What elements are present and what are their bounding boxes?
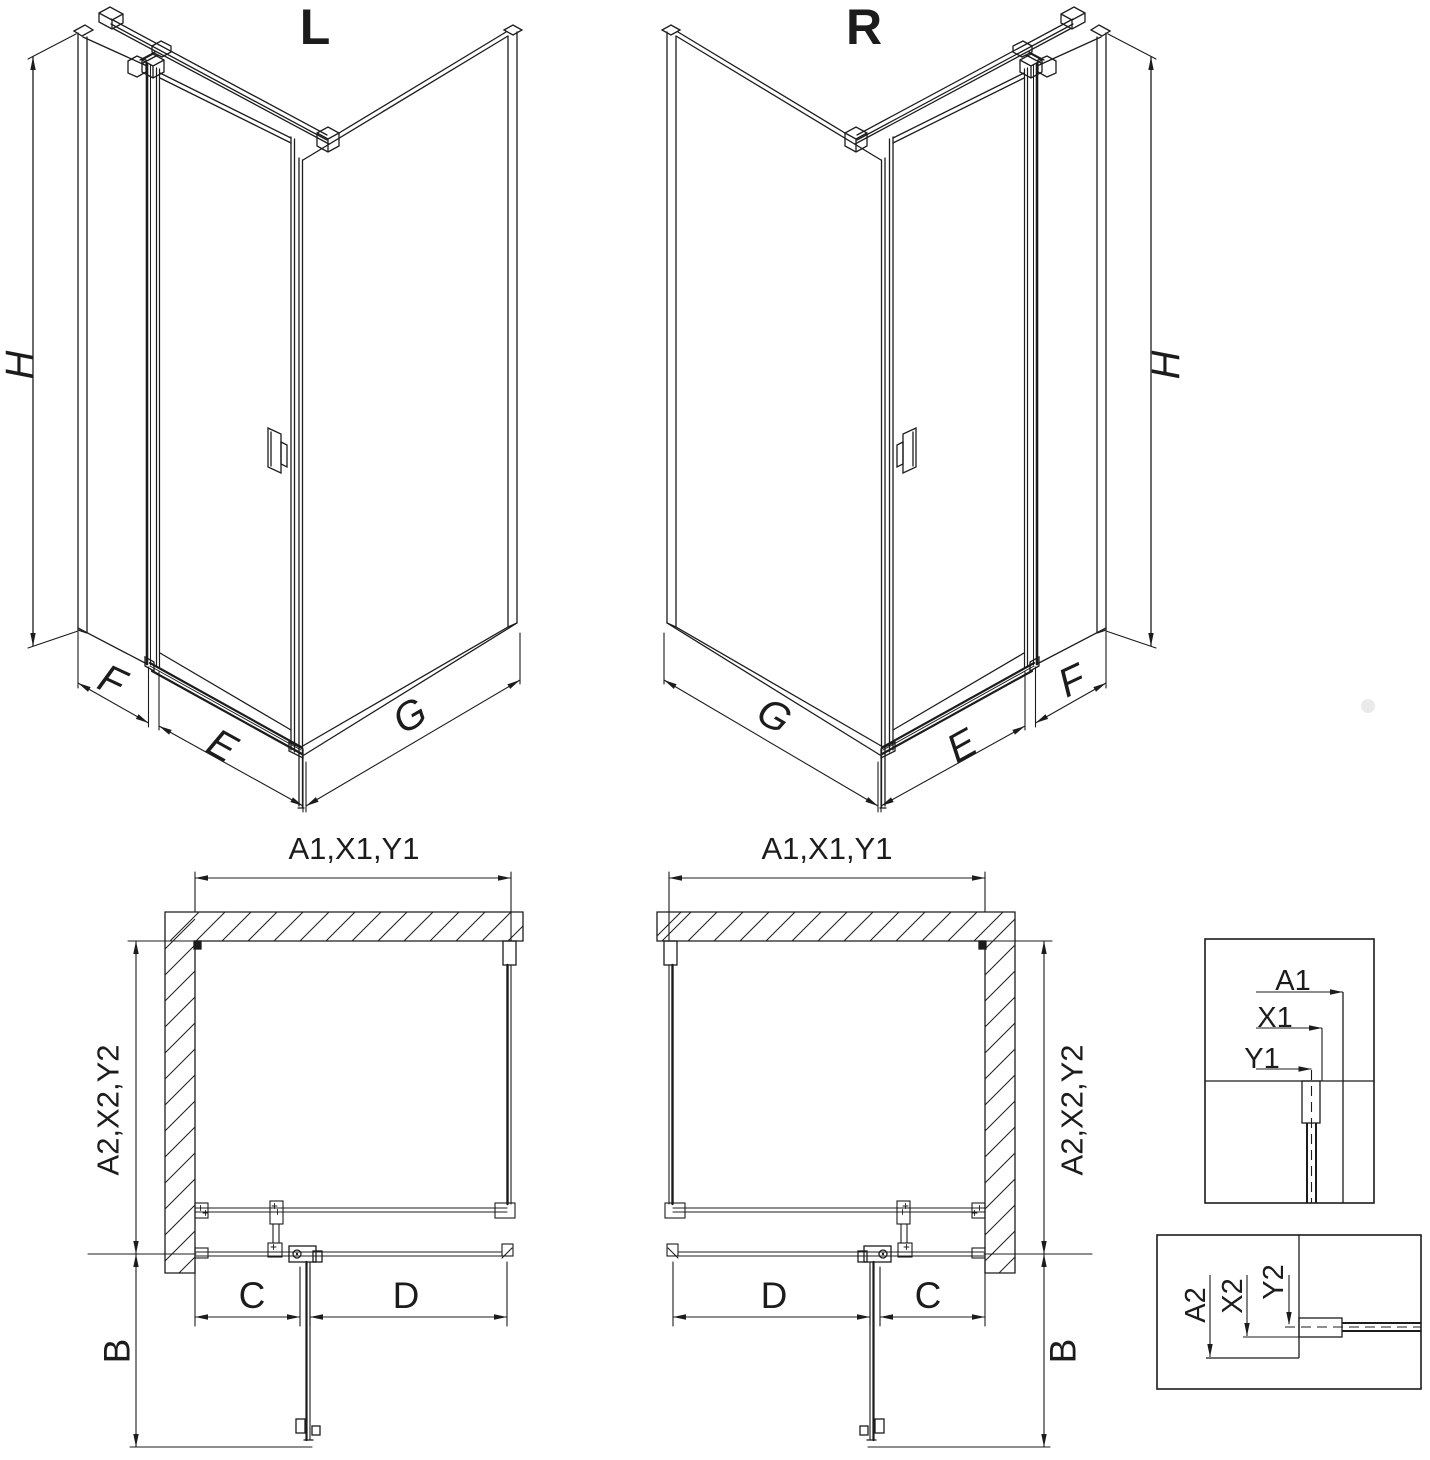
label-a1-plan-right: A1,X1,Y1 — [762, 831, 893, 866]
plan-view-left — [88, 872, 523, 1447]
label-a1-plan-left: A1,X1,Y1 — [289, 831, 420, 866]
label-d-plan-left: D — [393, 1275, 420, 1316]
label-c-plan-right: C — [915, 1275, 942, 1316]
label-d-plan-right: D — [761, 1275, 788, 1316]
technical-drawing-canvas: L H F E G R H F E G A1,X1,Y1 A2,X2,Y2 B … — [0, 0, 1430, 1460]
label-f-right: F — [1052, 655, 1095, 706]
label-a2-plan-left: A2,X2,Y2 — [91, 1045, 126, 1176]
labels-layer: L H F E G R H F E G A1,X1,Y1 A2,X2,Y2 B … — [0, 0, 1311, 1363]
label-b-plan-left: B — [97, 1339, 138, 1364]
label-detail-x2: X2 — [1217, 1278, 1249, 1313]
plan-view-right — [657, 872, 1092, 1447]
label-e-right: E — [940, 720, 986, 772]
wall-hatch-right-plan — [657, 912, 1015, 1273]
label-detail-a1: A1 — [1275, 965, 1310, 997]
label-h-left: H — [0, 350, 42, 379]
label-detail-a2: A2 — [1180, 1287, 1212, 1322]
variant-label-left: L — [300, 0, 331, 55]
variant-label-right: R — [846, 0, 882, 55]
wall-hatch-left-plan — [165, 912, 523, 1273]
label-h-right: H — [1144, 350, 1188, 379]
label-f-left: F — [92, 656, 135, 707]
label-detail-y1: Y1 — [1244, 1043, 1279, 1075]
label-detail-y2: Y2 — [1258, 1264, 1290, 1299]
drawing-page: L H F E G R H F E G A1,X1,Y1 A2,X2,Y2 B … — [0, 0, 1430, 1460]
label-detail-x1: X1 — [1257, 1002, 1292, 1034]
label-b-plan-right: B — [1043, 1339, 1084, 1364]
label-e-left: E — [200, 720, 246, 772]
watermark-dot — [1361, 699, 1375, 713]
label-a2-plan-right: A2,X2,Y2 — [1055, 1045, 1090, 1176]
label-c-plan-left: C — [239, 1275, 266, 1316]
